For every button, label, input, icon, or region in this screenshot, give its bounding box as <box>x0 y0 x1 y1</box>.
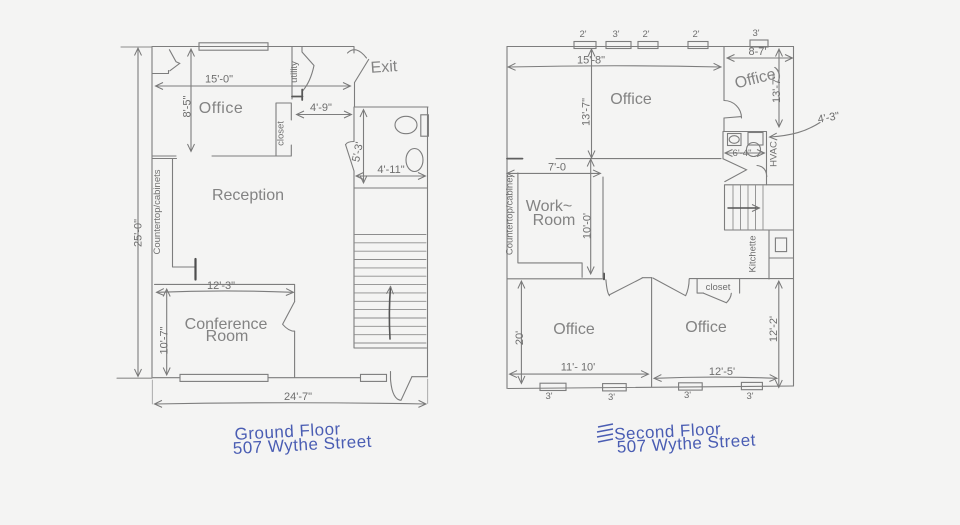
svg-text:3': 3' <box>684 390 691 401</box>
svg-text:12'-2': 12'-2' <box>768 316 780 342</box>
svg-text:3': 3' <box>608 392 615 403</box>
svg-text:6'-4": 6'-4" <box>733 148 752 159</box>
svg-text:Room: Room <box>533 212 576 229</box>
svg-text:3': 3' <box>545 391 552 402</box>
svg-text:Office: Office <box>199 100 244 117</box>
svg-text:15'-8": 15'-8" <box>577 55 605 67</box>
svg-text:2': 2' <box>579 29 586 40</box>
svg-text:Exit: Exit <box>370 58 398 77</box>
svg-text:Reception: Reception <box>212 187 284 204</box>
svg-text:4'-3": 4'-3" <box>817 110 841 126</box>
svg-text:utility: utility <box>289 61 300 83</box>
svg-text:13'-7": 13'-7" <box>771 75 783 103</box>
svg-text:2': 2' <box>642 29 649 40</box>
svg-text:Office: Office <box>610 91 652 108</box>
svg-text:12'-3": 12'-3" <box>207 280 235 292</box>
svg-text:7'-0: 7'-0 <box>548 161 566 173</box>
svg-text:25'-0": 25'-0" <box>133 219 145 247</box>
svg-text:8'-5": 8'-5" <box>182 95 194 117</box>
svg-text:10'-0': 10'-0' <box>582 213 594 239</box>
svg-text:closet: closet <box>276 121 287 146</box>
svg-text:12'-5': 12'-5' <box>709 366 735 378</box>
svg-text:2': 2' <box>692 29 699 40</box>
svg-text:closet: closet <box>706 282 731 293</box>
svg-text:24'-7": 24'-7" <box>284 391 312 403</box>
svg-text:10'-7": 10'-7" <box>159 326 171 354</box>
svg-text:11'- 10': 11'- 10' <box>561 362 596 374</box>
svg-text:Countertop/cabinets: Countertop/cabinets <box>152 169 163 254</box>
svg-text:15'-0": 15'-0" <box>205 74 233 86</box>
svg-text:13'-7": 13'-7" <box>581 98 593 126</box>
svg-text:Countertop/cabinet: Countertop/cabinet <box>504 175 515 256</box>
svg-text:20': 20' <box>514 331 526 345</box>
svg-text:3': 3' <box>746 391 753 402</box>
svg-text:Room: Room <box>206 328 249 345</box>
svg-text:HVAC: HVAC <box>769 141 780 167</box>
svg-text:Office: Office <box>685 319 727 336</box>
svg-text:3': 3' <box>612 29 619 40</box>
svg-text:4'-9": 4'-9" <box>310 102 332 114</box>
svg-text:3': 3' <box>752 28 759 39</box>
svg-text:8-7': 8-7' <box>749 46 767 58</box>
svg-text:4'-11": 4'-11" <box>377 164 404 176</box>
svg-text:Office: Office <box>553 321 595 338</box>
svg-text:Kitchette: Kitchette <box>748 236 759 273</box>
